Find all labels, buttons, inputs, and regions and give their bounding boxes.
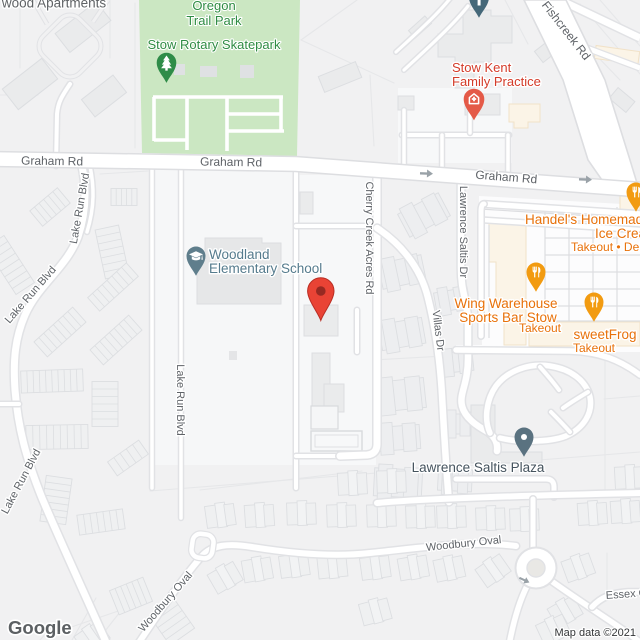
svg-text:Graham Rd: Graham Rd: [21, 153, 83, 168]
svg-text:Takeout: Takeout: [573, 341, 616, 355]
svg-text:Elementary School: Elementary School: [209, 261, 322, 276]
svg-text:Map data ©2021: Map data ©2021: [555, 627, 637, 639]
svg-text:wood Apartments: wood Apartments: [1, 0, 107, 11]
svg-text:Stow Rotary Skatepark: Stow Rotary Skatepark: [148, 37, 281, 52]
svg-text:Takeout: Takeout: [519, 321, 562, 335]
svg-text:Graham Rd: Graham Rd: [200, 154, 262, 169]
svg-text:Family Practice: Family Practice: [452, 74, 541, 89]
svg-text:Google: Google: [8, 617, 72, 638]
svg-text:Cherry Creek Acres Rd: Cherry Creek Acres Rd: [363, 181, 375, 294]
svg-text:Trail Park: Trail Park: [186, 13, 242, 28]
svg-text:Wing Warehouse: Wing Warehouse: [454, 296, 557, 311]
svg-text:Oregon: Oregon: [192, 0, 235, 13]
svg-text:Lawrence Saltis Dr: Lawrence Saltis Dr: [457, 186, 469, 279]
svg-text:Lake Run Blvd: Lake Run Blvd: [174, 364, 186, 436]
svg-text:sweetFrog: sweetFrog: [573, 327, 636, 342]
svg-text:Woodland: Woodland: [209, 247, 270, 262]
svg-text:Ice Cream: Ice Cream: [595, 226, 640, 241]
svg-text:Lawrence Saltis Plaza: Lawrence Saltis Plaza: [412, 460, 545, 475]
svg-text:Handel's Homemade: Handel's Homemade: [525, 212, 640, 227]
svg-text:Takeout • Delivery: Takeout • Delivery: [571, 240, 640, 254]
svg-text:Stow Kent: Stow Kent: [452, 60, 512, 75]
